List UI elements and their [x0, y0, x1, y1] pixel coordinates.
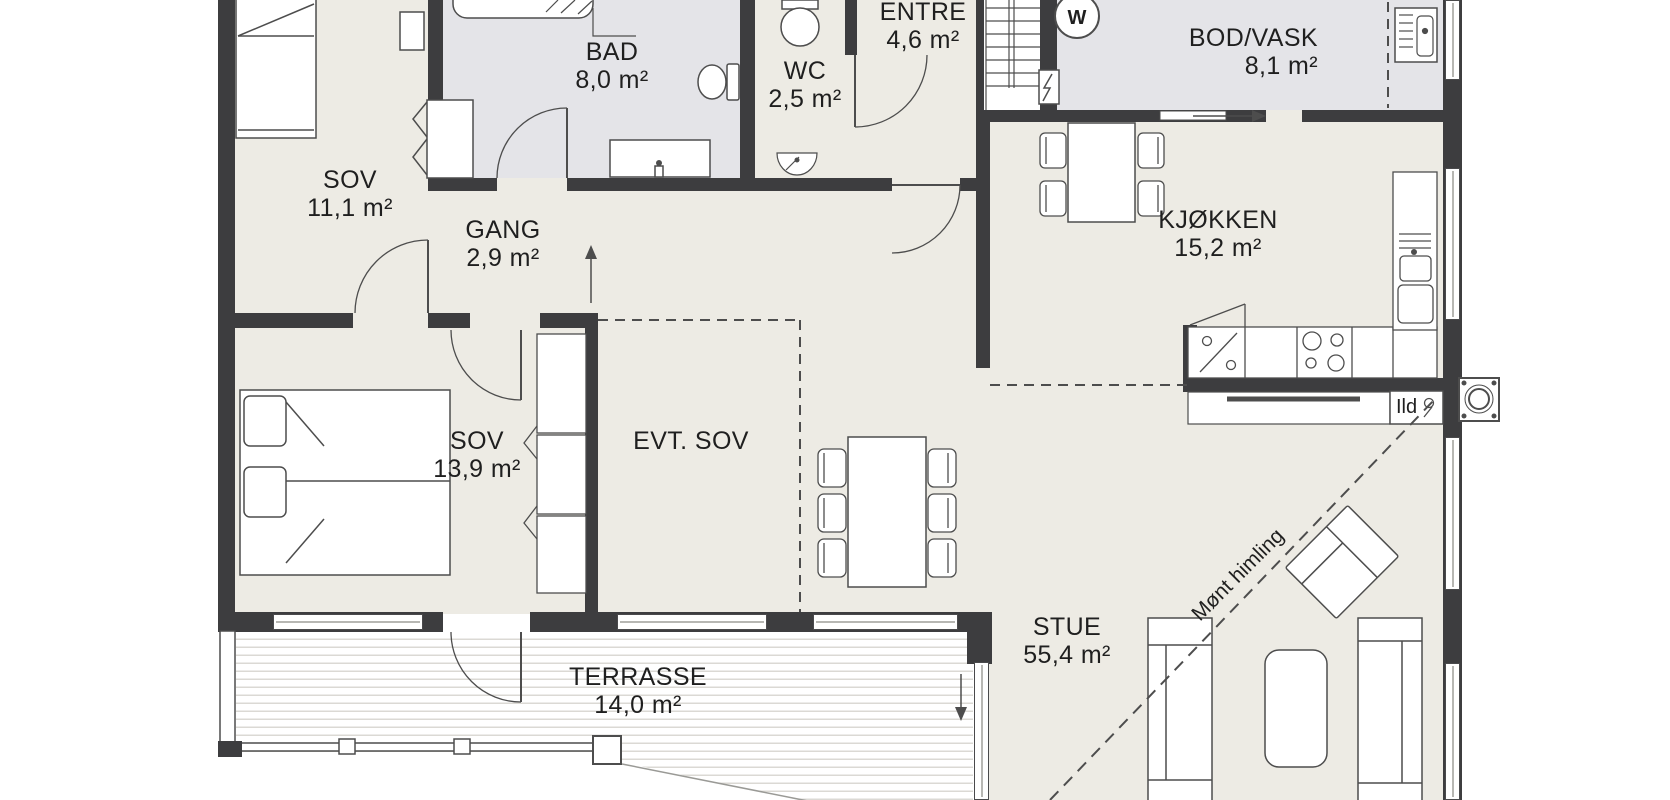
chimney-icon: [1459, 378, 1499, 421]
coffee-table: [1265, 650, 1327, 767]
hearth-bench: [1188, 392, 1390, 424]
entrance-arrow-gang: [585, 245, 597, 303]
toilet-wc-icon: [781, 0, 819, 46]
svg-text:W: W: [1068, 7, 1087, 29]
sofa-right: [1358, 618, 1422, 800]
room-label-evt-sov: EVT. SOV: [611, 427, 771, 455]
vanity-bad-icon: [610, 140, 710, 177]
room-label-bad: BAD 8,0 m²: [532, 38, 692, 94]
door-terrace: [451, 632, 521, 702]
door-hall: [892, 185, 960, 253]
door-sov2: [451, 330, 521, 400]
room-label-entre: ENTRE 4,6 m²: [843, 0, 1003, 54]
sliding-door-arrow-bod: [1160, 110, 1266, 122]
desk-sov1: [400, 12, 424, 50]
room-label-gang: GANG 2,9 m²: [423, 216, 583, 272]
bed-sov1: [236, 0, 316, 138]
utility-sink-icon: [1395, 8, 1437, 62]
plan-linework: W: [0, 0, 1670, 800]
stue-dining-set: [818, 437, 956, 587]
room-label-stue: STUE 55,4 m²: [987, 613, 1147, 669]
room-label-sov-2: SOV 13,9 m²: [397, 427, 557, 483]
sofa-left: [1148, 618, 1212, 800]
room-label-wc: WC 2,5 m²: [725, 57, 885, 113]
room-label-kjokken: KJØKKEN 15,2 m²: [1138, 206, 1298, 262]
terrace-railing: [218, 631, 808, 800]
kitchen-counter: [1188, 172, 1437, 378]
room-label-bod-vask: BOD/VASK 8,1 m²: [1118, 24, 1318, 80]
room-label-terrasse: TERRASSE 14,0 m²: [558, 663, 718, 719]
floor-plan: W: [0, 0, 1670, 800]
armchair: [1285, 505, 1398, 618]
washing-machine-icon: W: [1055, 0, 1099, 38]
entrance-arrow-terrace: [955, 674, 967, 721]
ridge-label: Mønt himling: [1187, 524, 1288, 625]
door-bad: [497, 108, 567, 178]
room-label-sov-1: SOV 11,1 m²: [270, 166, 430, 222]
electrical-panel-icon: [1039, 70, 1059, 104]
sink-wc-icon: [777, 153, 817, 175]
door-sov1: [355, 240, 428, 313]
fireplace-label: Ild: [1396, 396, 1417, 419]
